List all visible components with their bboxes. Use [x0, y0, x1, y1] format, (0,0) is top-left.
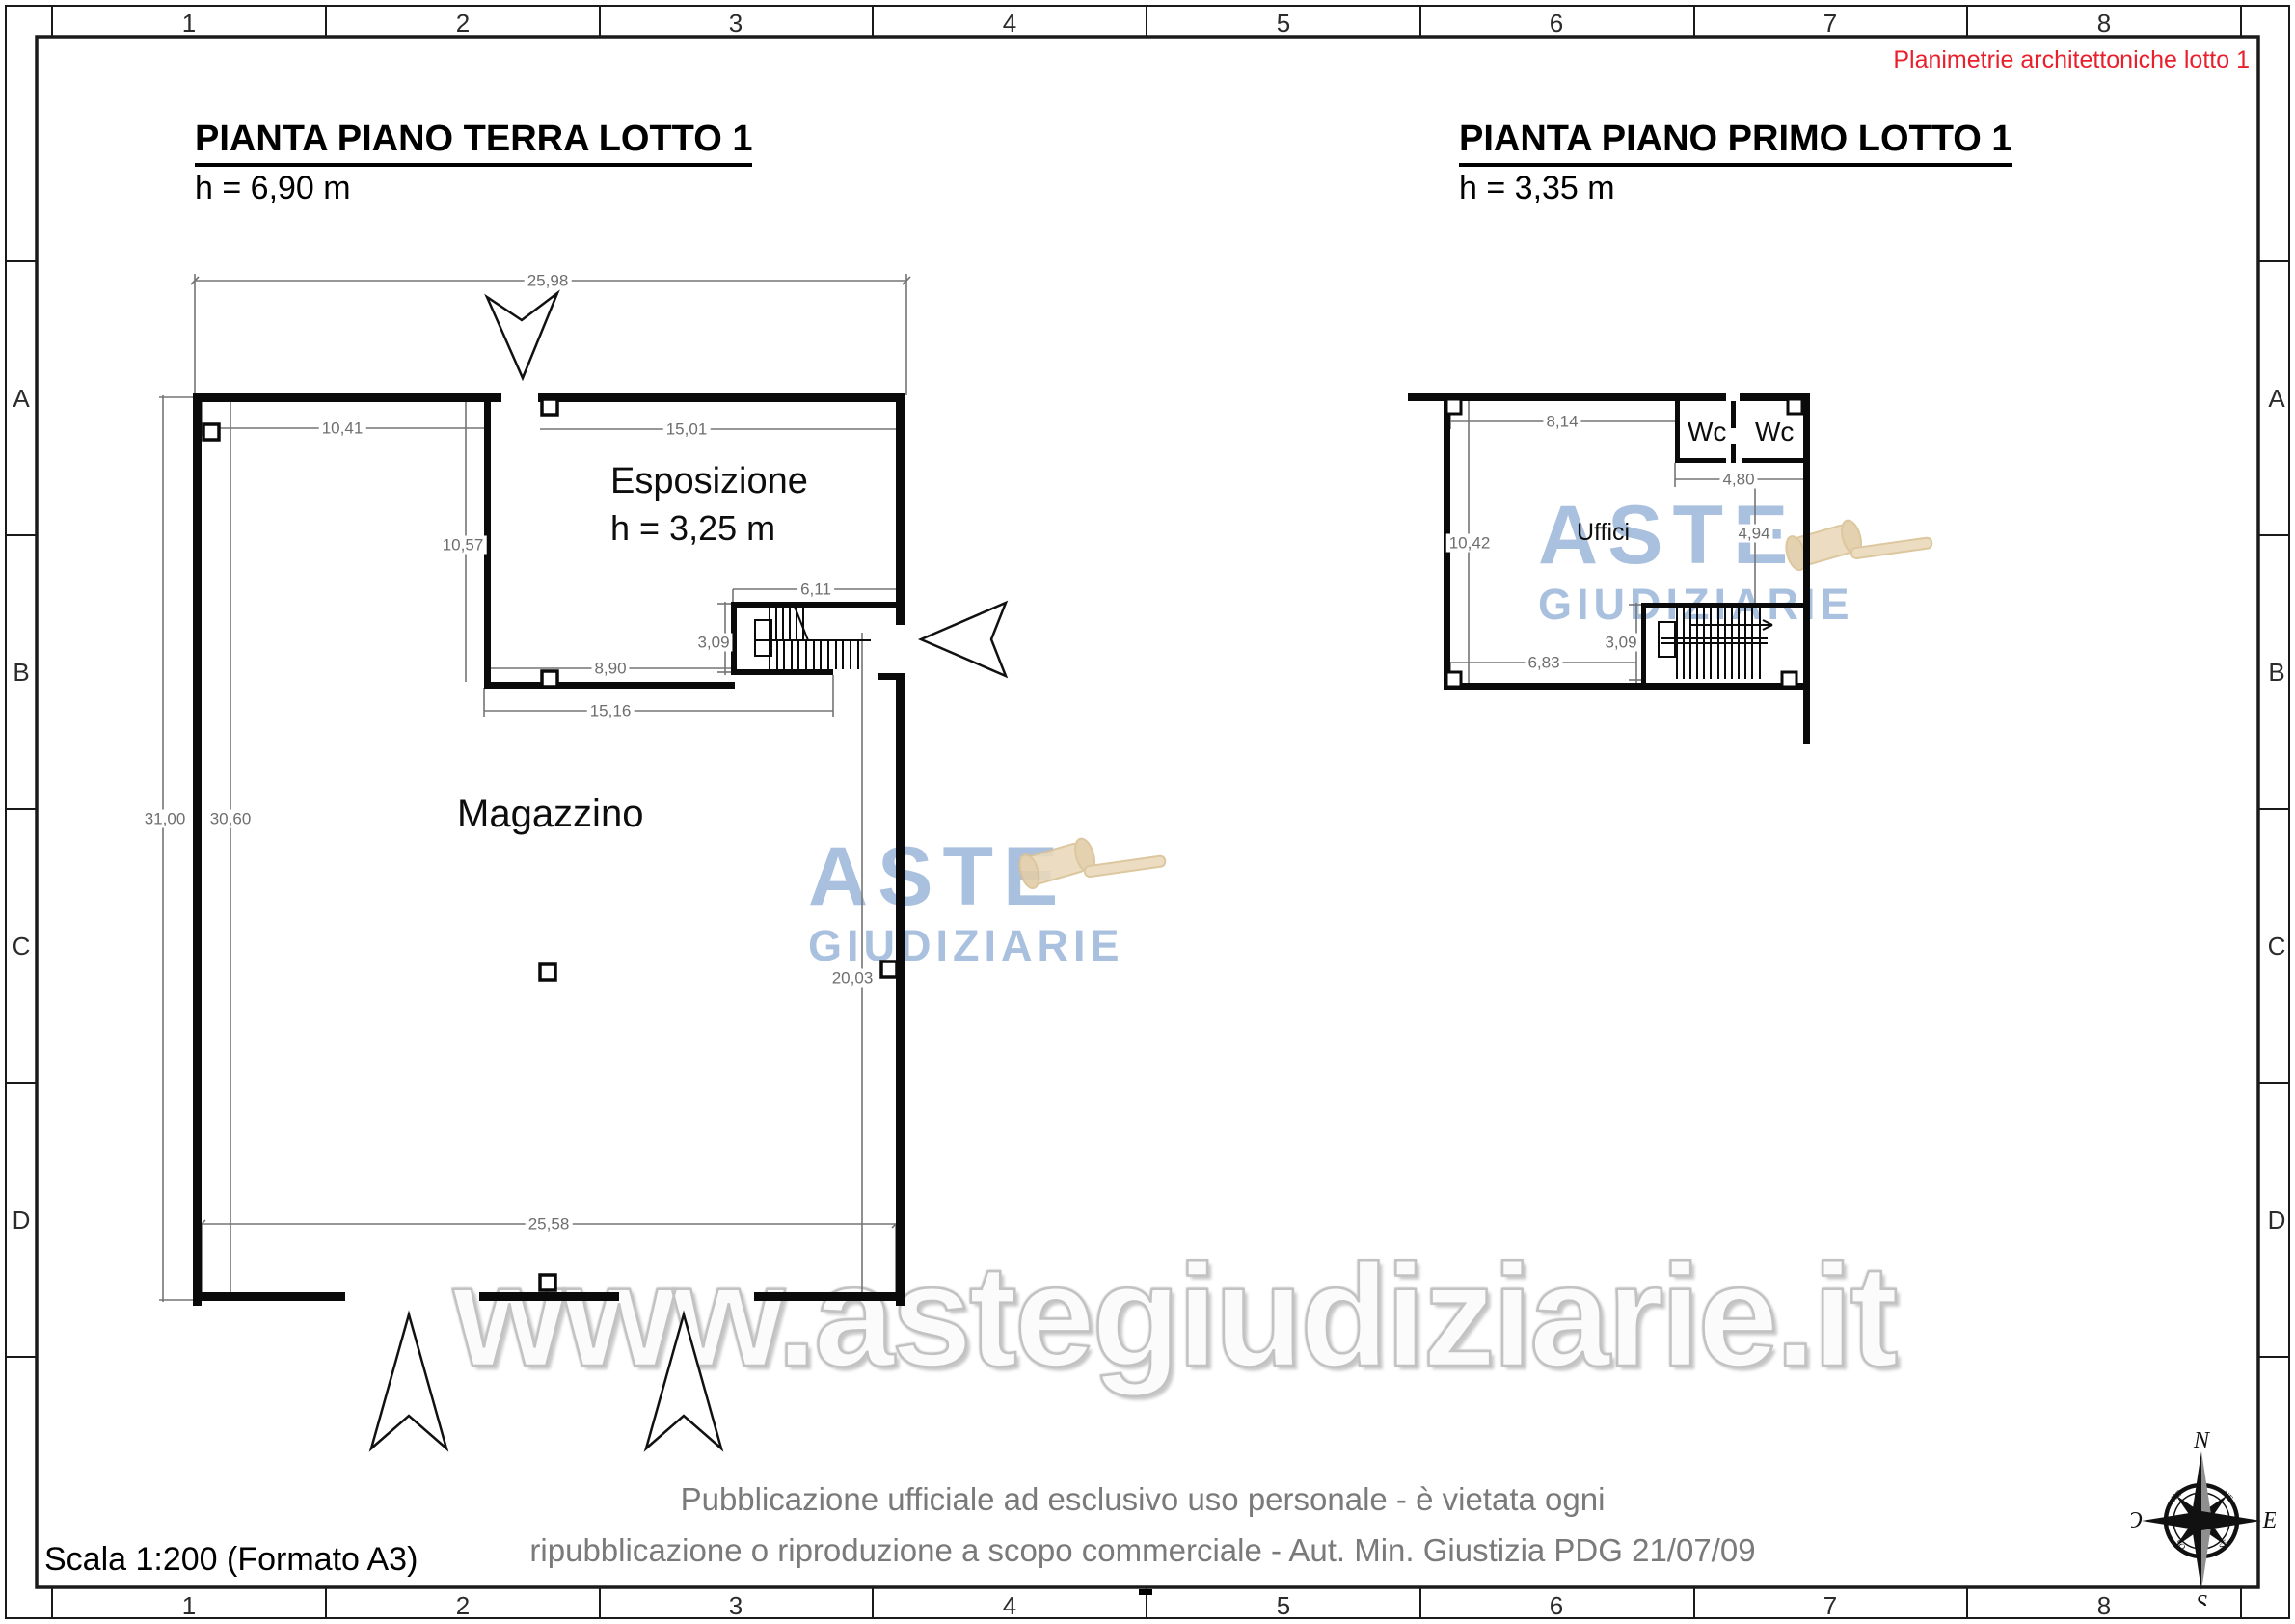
fold-mark	[1139, 1589, 1152, 1595]
dim-label: 10,57	[440, 536, 487, 555]
dim-label: 6,11	[797, 581, 834, 599]
dim-label: 3,09	[694, 634, 732, 652]
disclaimer: Pubblicazione ufficiale ad esclusivo uso…	[381, 1474, 1904, 1576]
dim-label: 31,00	[142, 810, 189, 828]
room-label-esposizione: Esposizione	[610, 461, 808, 502]
dim-label: 4,80	[1719, 471, 1757, 489]
disclaimer-line2: ripubblicazione o riproduzione a scopo c…	[381, 1525, 1904, 1576]
room-label-esposizione-height: h = 3,25 m	[610, 508, 775, 549]
dim-label: 8,14	[1543, 413, 1580, 431]
room-label-wc1: Wc	[1687, 417, 1726, 447]
dim-label: 30,60	[207, 810, 255, 828]
sheet-frame	[0, 0, 2295, 1624]
dim-label: 10,41	[319, 420, 366, 438]
dim-label: 3,09	[1602, 634, 1639, 652]
room-label-uffici: Uffici	[1577, 519, 1630, 547]
room-label-wc2: Wc	[1755, 417, 1794, 447]
dim-label: 15,16	[587, 702, 634, 720]
disclaimer-line1: Pubblicazione ufficiale ad esclusivo uso…	[381, 1474, 1904, 1525]
top-ruler-ticks	[52, 6, 2241, 37]
room-label-magazzino: Magazzino	[457, 793, 643, 836]
dim-label: 20,03	[829, 969, 877, 988]
dim-label: 10,42	[1446, 534, 1494, 553]
dim-label: 6,83	[1525, 654, 1562, 672]
dim-label: 4,94	[1735, 525, 1772, 543]
dim-label: 8,90	[591, 660, 629, 678]
dim-label: 25,58	[526, 1215, 573, 1233]
dim-label: 25,98	[525, 272, 572, 290]
drawing-sheet: ASTE GIUDIZIARIE ASTE GIUDIZIARIE www.as…	[0, 0, 2295, 1624]
dim-label: 15,01	[663, 420, 711, 439]
